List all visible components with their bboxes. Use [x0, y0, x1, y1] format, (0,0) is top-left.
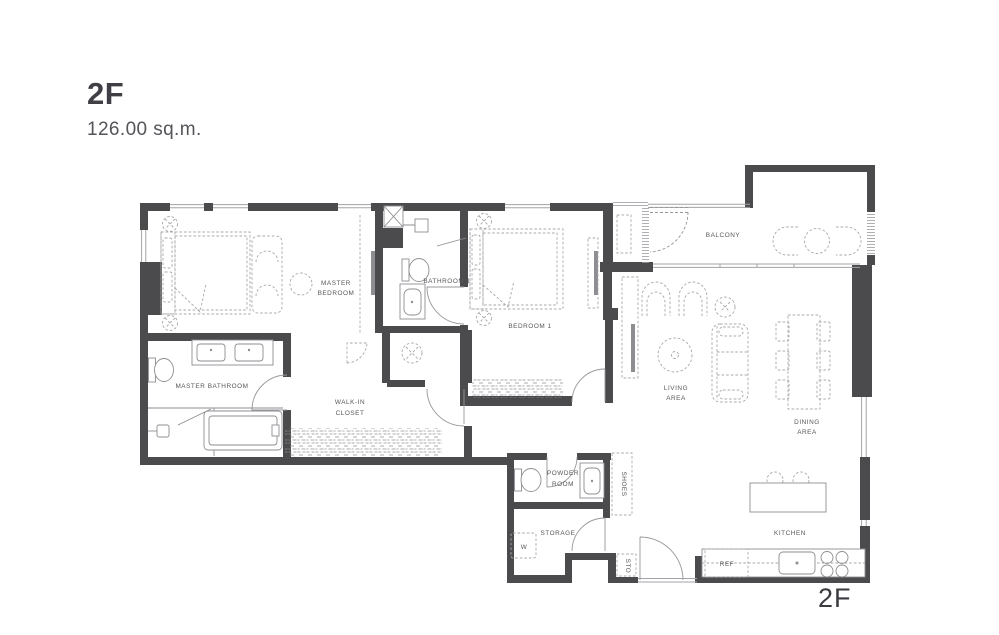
- closet-hatching: [285, 200, 875, 457]
- bathtub: [204, 411, 282, 450]
- tv-console: [622, 277, 638, 378]
- dining-chair: [776, 380, 789, 399]
- entry-door: [640, 537, 683, 580]
- room-label-walkin-line1: WALK-IN: [335, 399, 365, 406]
- room-label-master-bathroom: MASTER BATHROOM: [175, 383, 248, 390]
- ceiling-fixture-icon: [477, 311, 492, 326]
- ac-ledge-louver: [642, 208, 649, 263]
- room-label-master-bedroom-line1: MASTER: [321, 280, 351, 287]
- sink: [197, 344, 225, 361]
- balcony-chair: [836, 227, 861, 255]
- sink: [235, 344, 263, 361]
- ceiling-fixture-icon: [477, 214, 492, 229]
- tv-living: [631, 324, 635, 372]
- ceiling-fixture-icon: [163, 217, 178, 232]
- entry-threshold: [638, 579, 697, 583]
- dining-chair: [776, 351, 789, 370]
- kitchen-island: [750, 483, 826, 512]
- ac-condenser: [617, 215, 631, 253]
- toilet: [155, 359, 174, 382]
- title-block: 2F 126.00 sq.m.: [87, 76, 202, 141]
- room-label-bathroom1: BATHROOM 1: [423, 278, 470, 285]
- stool: [402, 343, 422, 363]
- tub-faucet: [272, 425, 279, 436]
- dining-chair: [817, 380, 830, 399]
- coffee-table: [658, 338, 692, 372]
- room-label-powder-line2: ROOM: [552, 481, 574, 488]
- room-label-balcony: BALCONY: [706, 232, 741, 239]
- master-bed: [161, 232, 250, 314]
- floor-plan-page: 2F 126.00 sq.m.: [0, 0, 999, 635]
- stool: [290, 273, 312, 295]
- room-label-kitchen: KITCHEN: [774, 530, 806, 537]
- master-bathroom-door: [252, 375, 287, 410]
- floor-title: 2F: [87, 76, 202, 112]
- bathroom1-door: [427, 287, 464, 324]
- label-ref: REF: [720, 561, 734, 568]
- room-label-shoes: SHOES: [620, 471, 627, 496]
- water-heater: [415, 219, 428, 232]
- toilet-tank: [402, 259, 409, 281]
- balcony-sliding-door: [653, 264, 860, 267]
- room-label-storage: STORAGE: [541, 530, 576, 537]
- bed: [470, 229, 563, 309]
- room-label-walkin-line2: CLOSET: [336, 410, 365, 417]
- room-label-master-bedroom-line2: BEDROOM: [318, 290, 355, 297]
- walls: [140, 165, 875, 583]
- balcony-ledge-door: [650, 208, 688, 253]
- plan-floor-label: 2F: [818, 583, 852, 614]
- ceiling-fixture-icon: [163, 316, 178, 331]
- room-label-living-line1: LIVING: [664, 385, 688, 392]
- bedroom1-closet-rail: [472, 378, 563, 398]
- bedroom1-door: [572, 369, 605, 402]
- armchair: [642, 282, 670, 316]
- toilet-tank: [515, 469, 522, 491]
- label-sto: STO: [624, 559, 631, 574]
- bedside-chaise: [252, 236, 282, 313]
- armchair: [679, 282, 707, 316]
- walkin-closet-door: [427, 389, 464, 426]
- floor-area: 126.00 sq.m.: [87, 119, 202, 141]
- balcony-table: [805, 229, 830, 254]
- room-label-living-line2: AREA: [666, 395, 686, 402]
- tv-master-bedroom: [371, 251, 375, 295]
- dining-chair: [776, 322, 789, 341]
- balcony-chair: [773, 227, 798, 255]
- shower-head: [157, 425, 169, 437]
- storage-door: [572, 518, 605, 551]
- ledge-top-louver: [613, 200, 648, 208]
- room-label-dining-line2: AREA: [797, 429, 817, 436]
- toilet: [521, 469, 541, 492]
- walkin-closet-rail: [285, 428, 442, 457]
- balcony-vent: [867, 212, 875, 255]
- dining-chair: [817, 322, 830, 341]
- balcony-rail: [648, 204, 750, 207]
- room-label-dining-line1: DINING: [794, 419, 820, 426]
- label-washer: W: [521, 544, 528, 551]
- corner-chair: [347, 343, 367, 363]
- dining-chair: [817, 351, 830, 370]
- room-label-powder-line1: POWDER: [547, 470, 579, 477]
- room-label-bedroom1: BEDROOM 1: [508, 323, 551, 330]
- tv-bedroom1: [594, 251, 598, 295]
- dining-table: [788, 315, 820, 409]
